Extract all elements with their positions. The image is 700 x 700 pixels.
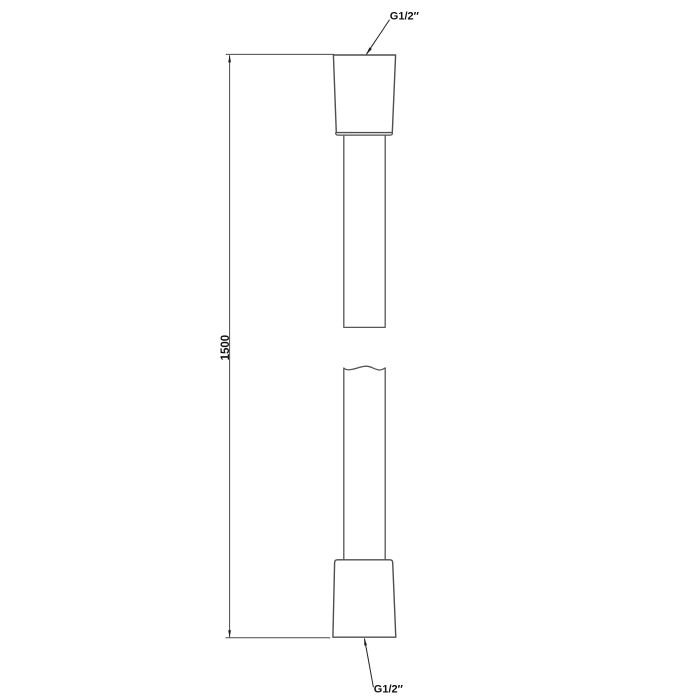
svg-text:1500: 1500 bbox=[220, 335, 232, 361]
svg-text:G1/2″: G1/2″ bbox=[390, 10, 420, 22]
svg-text:G1/2″: G1/2″ bbox=[374, 684, 404, 696]
